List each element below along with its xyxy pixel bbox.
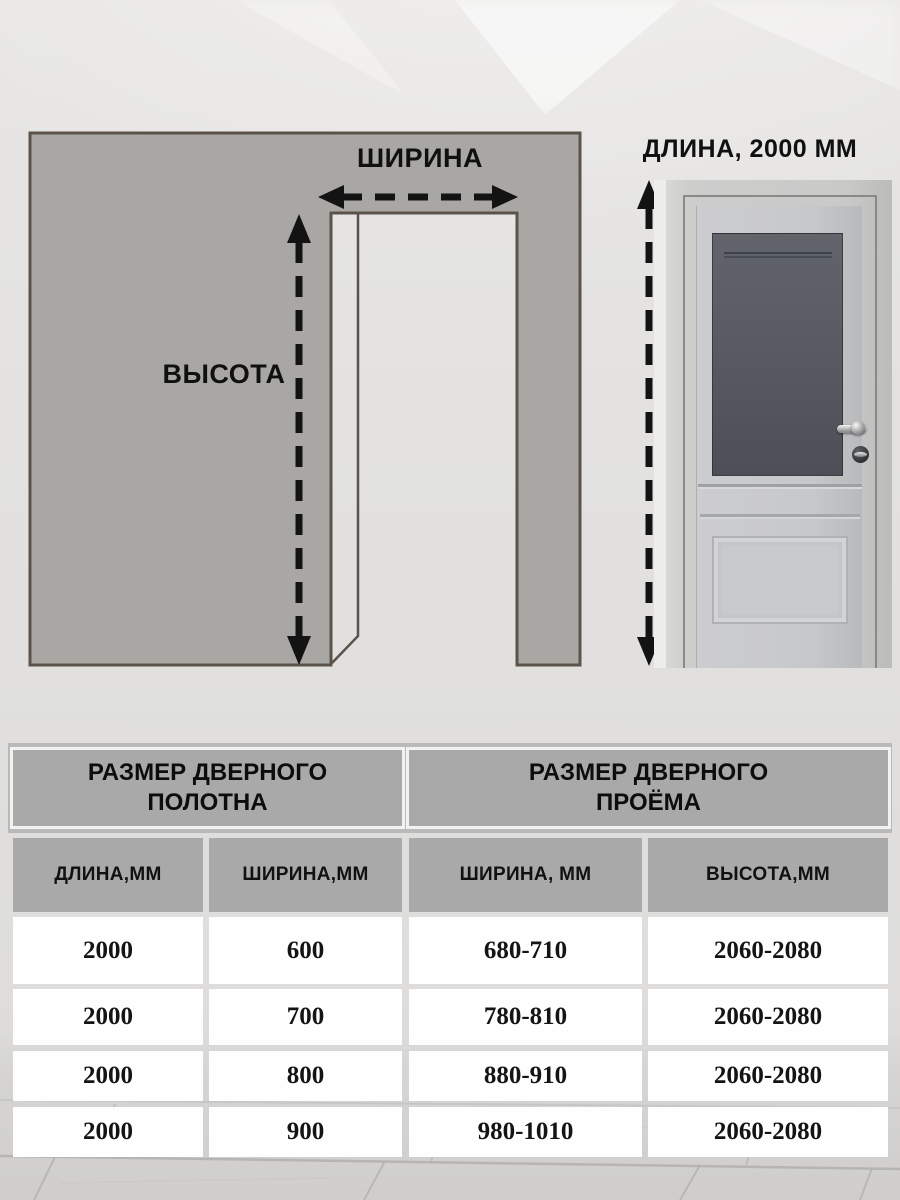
door-lock (852, 446, 869, 463)
table-cell: 2060-2080 (648, 917, 888, 984)
opening-jamb-line (332, 214, 358, 663)
width-dimension-label: ШИРИНА (320, 143, 520, 174)
table-cell: 980-1010 (409, 1107, 642, 1157)
door-rail-molding (698, 484, 862, 487)
wall-shape (30, 133, 580, 665)
table-cell: 680-710 (409, 917, 642, 984)
table-cell: 2000 (13, 989, 203, 1045)
glass-molding-line (724, 252, 832, 258)
door-photo-wall-edge (654, 180, 666, 668)
door-length-label: ДЛИНА, 2000 ММ (600, 135, 900, 164)
table-cell: 600 (209, 917, 402, 984)
door-handle-rosette (851, 421, 865, 435)
group-header-door-opening-size: РАЗМЕР ДВЕРНОГО ПРОЁМА (406, 747, 891, 829)
table-cell: 2000 (13, 1107, 203, 1157)
column-header-width-opening: ШИРИНА, ММ (409, 838, 642, 912)
door-size-infographic: ШИРИНА ВЫСОТА ДЛИНА, 2000 ММ РАЗМЕР ДВЕР… (0, 0, 900, 1200)
table-cell: 2060-2080 (648, 989, 888, 1045)
table-cell: 880-910 (409, 1051, 642, 1101)
table-cell: 780-810 (409, 989, 642, 1045)
door-photo (654, 180, 892, 668)
door-rail-molding (700, 514, 860, 517)
door-glass-panel (712, 233, 843, 476)
table-cell: 2060-2080 (648, 1107, 888, 1157)
column-header-length: ДЛИНА,ММ (13, 838, 203, 912)
table-cell: 2000 (13, 917, 203, 984)
table-cell: 800 (209, 1051, 402, 1101)
column-header-width-leaf: ШИРИНА,ММ (209, 838, 402, 912)
table-cell: 900 (209, 1107, 402, 1157)
column-header-height: ВЫСОТА,ММ (648, 838, 888, 912)
group-header-door-leaf-size: РАЗМЕР ДВЕРНОГО ПОЛОТНА (10, 747, 405, 829)
height-dimension-label: ВЫСОТА (156, 359, 292, 390)
table-cell: 700 (209, 989, 402, 1045)
door-bottom-panel (712, 536, 848, 624)
table-cell: 2000 (13, 1051, 203, 1101)
table-cell: 2060-2080 (648, 1051, 888, 1101)
